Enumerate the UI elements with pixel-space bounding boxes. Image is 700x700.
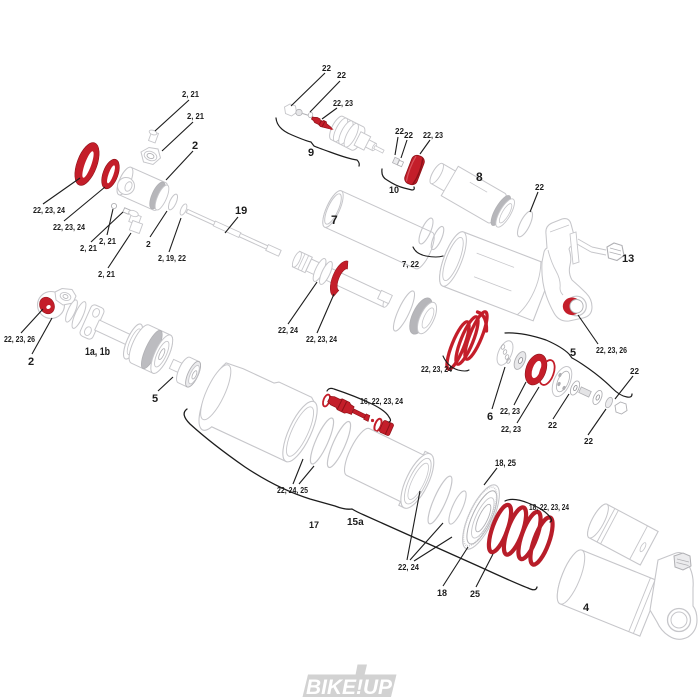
svg-text:22, 23, 24: 22, 23, 24 <box>306 335 337 344</box>
svg-text:2: 2 <box>146 239 151 249</box>
svg-text:2, 21: 2, 21 <box>182 90 200 99</box>
svg-text:22: 22 <box>322 64 332 73</box>
svg-text:2: 2 <box>192 140 198 152</box>
svg-text:16, 22, 23, 24: 16, 22, 23, 24 <box>360 397 403 406</box>
svg-text:22: 22 <box>630 367 640 376</box>
svg-text:22, 23: 22, 23 <box>423 131 443 140</box>
svg-text:22, 23, 24: 22, 23, 24 <box>33 206 65 215</box>
svg-text:1a, 1b: 1a, 1b <box>85 346 110 358</box>
svg-text:BIKE!UP: BIKE!UP <box>306 676 393 699</box>
svg-text:2, 21: 2, 21 <box>187 112 205 121</box>
svg-text:2, 21: 2, 21 <box>80 244 98 253</box>
svg-text:18, 25: 18, 25 <box>495 458 516 468</box>
svg-text:22, 23, 26: 22, 23, 26 <box>4 335 35 344</box>
svg-text:25: 25 <box>470 589 480 599</box>
svg-text:22, 23, 26: 22, 23, 26 <box>596 346 627 355</box>
svg-text:22, 24: 22, 24 <box>398 562 419 572</box>
svg-text:22, 23: 22, 23 <box>500 407 520 416</box>
svg-text:22: 22 <box>535 183 545 192</box>
svg-text:2, 21: 2, 21 <box>99 237 117 246</box>
svg-text:8: 8 <box>476 170 483 184</box>
svg-text:2, 21: 2, 21 <box>98 270 116 279</box>
svg-text:18: 18 <box>437 588 447 598</box>
svg-text:22, 23, 24: 22, 23, 24 <box>421 365 452 374</box>
svg-text:22, 23: 22, 23 <box>333 99 353 108</box>
svg-text:2, 19, 22: 2, 19, 22 <box>158 254 186 263</box>
svg-text:18, 22, 23, 24: 18, 22, 23, 24 <box>529 503 569 512</box>
svg-text:10: 10 <box>389 185 399 195</box>
svg-text:7: 7 <box>331 213 338 227</box>
svg-text:22: 22 <box>404 131 414 140</box>
svg-text:4: 4 <box>583 602 590 614</box>
svg-text:15a: 15a <box>347 517 364 528</box>
svg-text:7, 22: 7, 22 <box>402 260 420 269</box>
svg-text:22, 23, 24: 22, 23, 24 <box>53 223 85 232</box>
svg-text:13: 13 <box>622 253 634 265</box>
svg-text:5: 5 <box>152 393 158 405</box>
svg-text:9: 9 <box>308 147 314 159</box>
svg-text:22, 24, 25: 22, 24, 25 <box>277 486 308 495</box>
svg-text:22: 22 <box>337 71 347 80</box>
svg-text:22: 22 <box>548 421 558 430</box>
svg-text:22, 23: 22, 23 <box>501 425 521 434</box>
svg-text:17: 17 <box>309 520 319 530</box>
svg-text:22, 24: 22, 24 <box>278 326 298 335</box>
svg-text:6: 6 <box>487 411 493 423</box>
svg-text:19: 19 <box>235 205 247 217</box>
svg-text:22: 22 <box>584 437 594 446</box>
svg-text:2: 2 <box>28 356 34 368</box>
svg-text:5: 5 <box>570 347 576 359</box>
